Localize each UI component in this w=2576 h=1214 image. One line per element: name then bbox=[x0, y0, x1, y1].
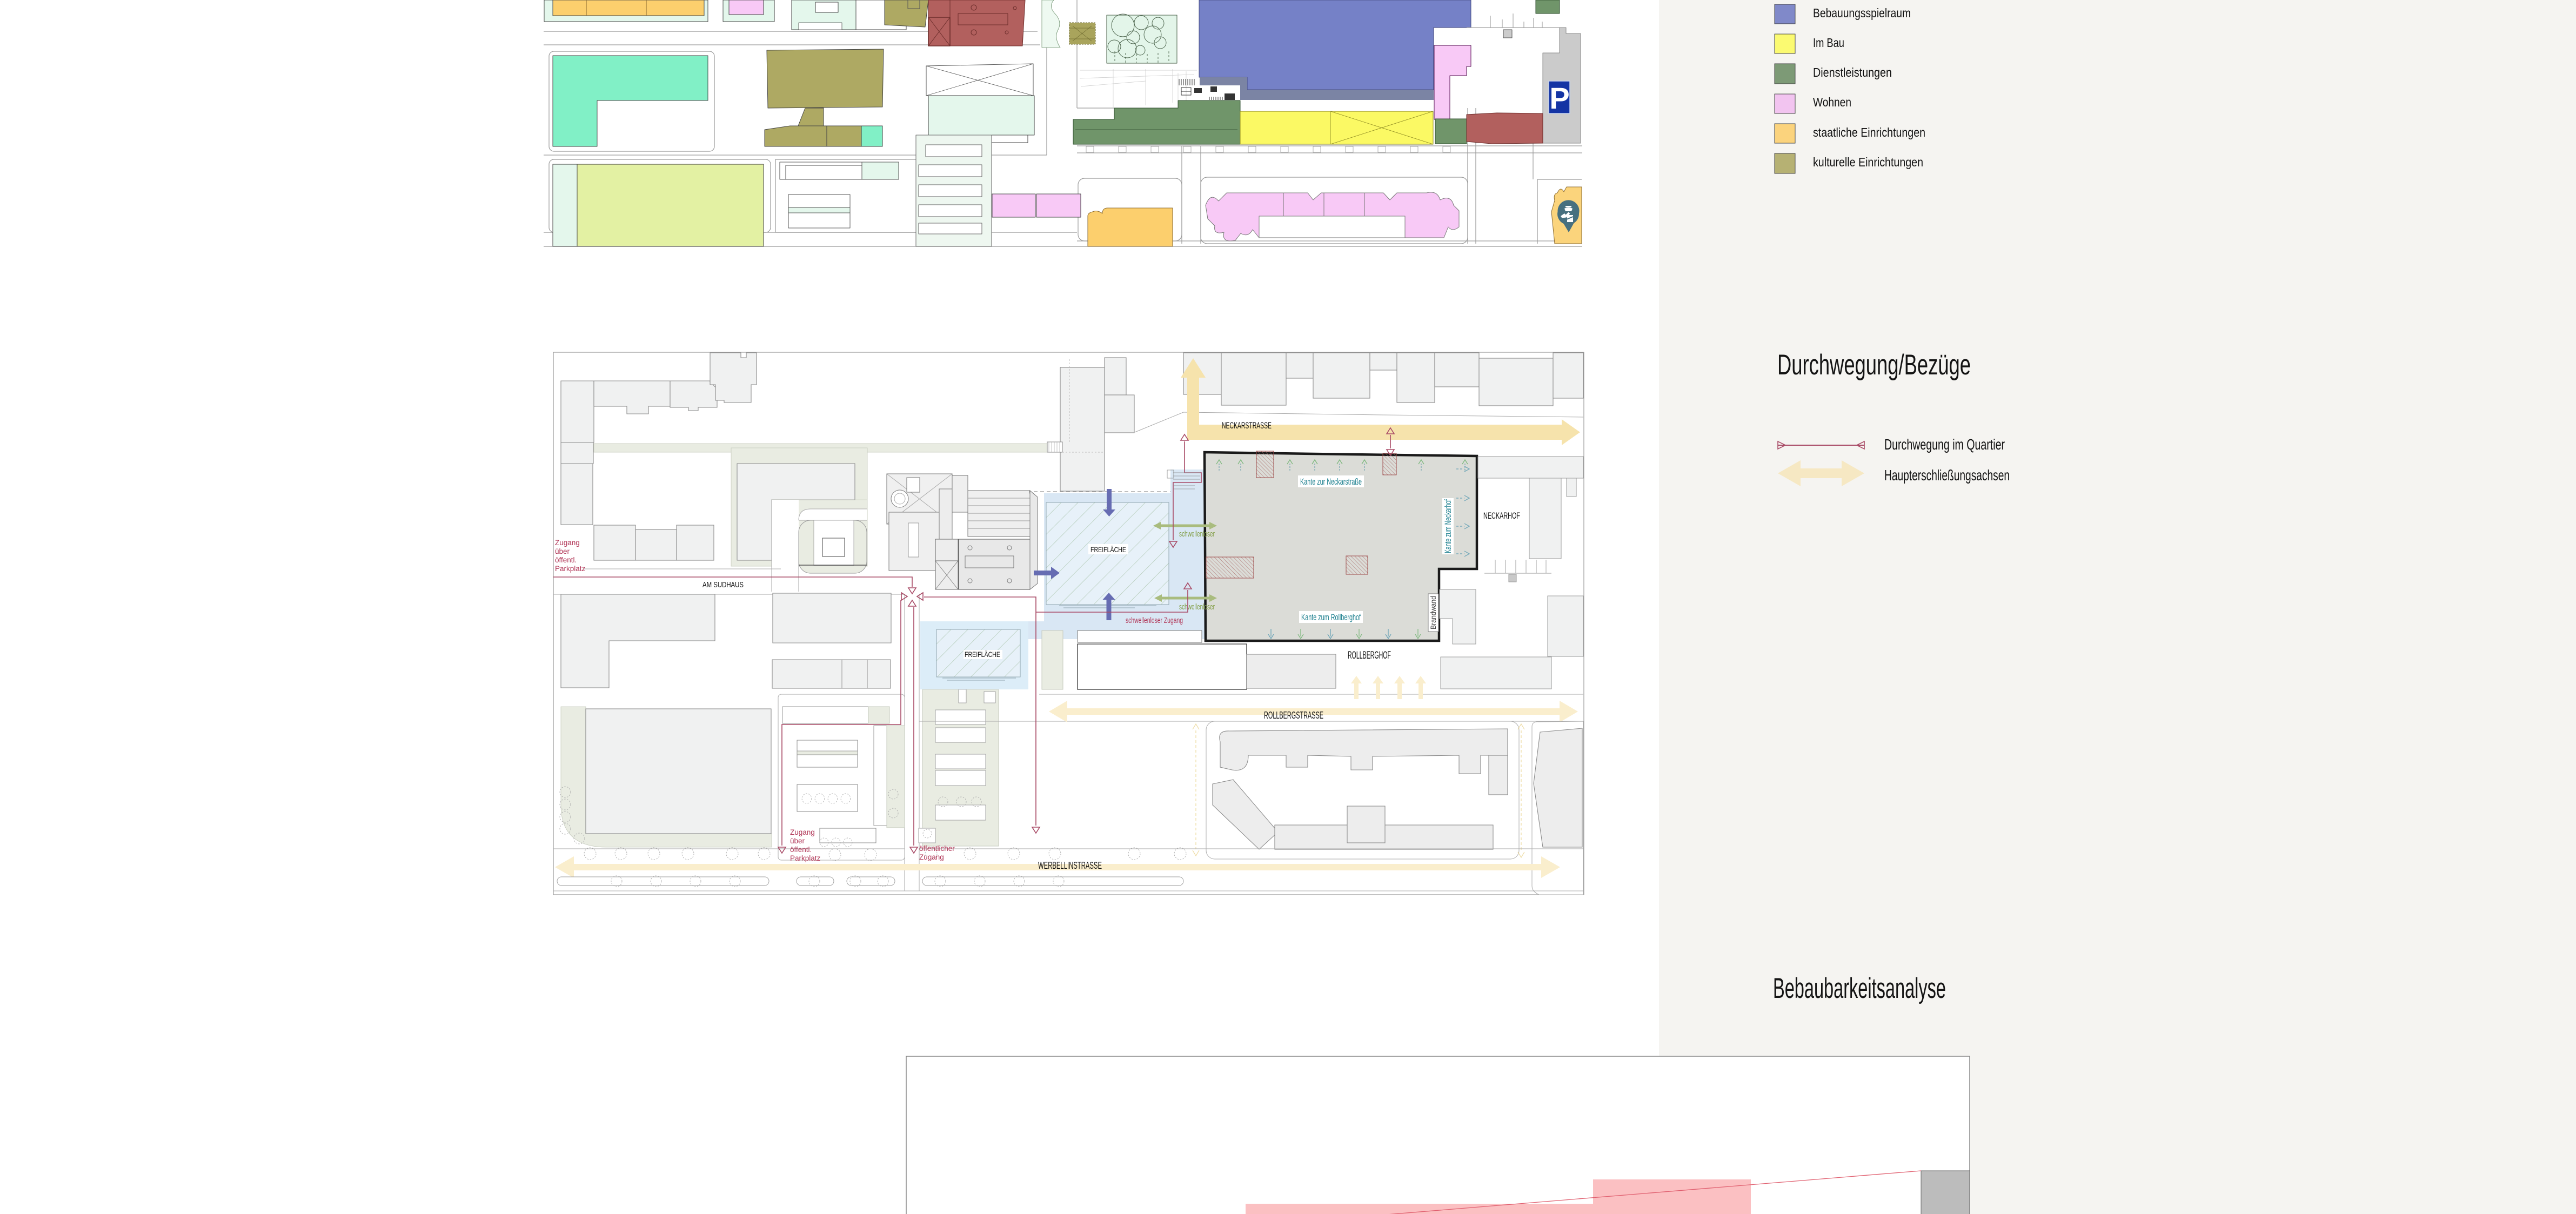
svg-text:Kante zum Neckarhof: Kante zum Neckarhof bbox=[1443, 499, 1453, 553]
svg-text:Dienstleistungen: Dienstleistungen bbox=[1813, 65, 1892, 79]
svg-text:öffentl.: öffentl. bbox=[790, 846, 812, 854]
svg-text:Zugang: Zugang bbox=[919, 853, 944, 861]
svg-text:Durchwegung/Bezüge: Durchwegung/Bezüge bbox=[1777, 349, 1971, 381]
svg-text:schwellenloser: schwellenloser bbox=[1179, 529, 1215, 539]
svg-text:Kante zur Neckarstraße: Kante zur Neckarstraße bbox=[1300, 477, 1362, 487]
svg-text:Wohnen: Wohnen bbox=[1813, 95, 1851, 109]
svg-text:P: P bbox=[1549, 81, 1569, 115]
svg-text:öffentlicher: öffentlicher bbox=[919, 844, 955, 853]
svg-text:FREIFLÄCHE: FREIFLÄCHE bbox=[965, 650, 1000, 659]
svg-text:Parkplatz: Parkplatz bbox=[790, 854, 821, 862]
svg-text:staatliche Einrichtungen: staatliche Einrichtungen bbox=[1813, 125, 1925, 139]
svg-text:FREIFLÄCHE: FREIFLÄCHE bbox=[1090, 545, 1126, 554]
svg-text:WERBELLINSTRASSE: WERBELLINSTRASSE bbox=[1038, 860, 1102, 871]
svg-text:Haupterschließungsachsen: Haupterschließungsachsen bbox=[1884, 467, 2010, 484]
svg-text:schwellenloser: schwellenloser bbox=[1179, 602, 1215, 612]
svg-text:Kante zum Rollberghof: Kante zum Rollberghof bbox=[1301, 612, 1361, 622]
svg-text:NECKARHOF: NECKARHOF bbox=[1483, 511, 1520, 521]
svg-text:öffentl.: öffentl. bbox=[555, 556, 577, 564]
svg-text:Zugang: Zugang bbox=[555, 539, 580, 547]
svg-text:NECKARSTRASSE: NECKARSTRASSE bbox=[1222, 420, 1272, 431]
svg-text:Zugang: Zugang bbox=[790, 828, 815, 836]
svg-text:ROLLBERGHOF: ROLLBERGHOF bbox=[1348, 650, 1391, 661]
svg-text:Bebauungsspielraum: Bebauungsspielraum bbox=[1813, 6, 1911, 20]
svg-text:AM SUDHAUS: AM SUDHAUS bbox=[702, 580, 744, 589]
svg-text:Brandwand: Brandwand bbox=[1429, 596, 1437, 629]
svg-text:ROLLBERGSTRASSE: ROLLBERGSTRASSE bbox=[1264, 710, 1323, 721]
svg-text:über: über bbox=[555, 547, 570, 555]
svg-text:Bebaubarkeitsanalyse: Bebaubarkeitsanalyse bbox=[1773, 972, 1946, 1004]
svg-text:über: über bbox=[790, 837, 805, 845]
svg-text:Parkplatz: Parkplatz bbox=[555, 565, 586, 573]
svg-text:kulturelle Einrichtungen: kulturelle Einrichtungen bbox=[1813, 155, 1923, 169]
svg-text:schwellenloser Zugang: schwellenloser Zugang bbox=[1126, 616, 1183, 625]
svg-text:Im Bau: Im Bau bbox=[1813, 36, 1844, 50]
svg-text:Durchwegung im Quartier: Durchwegung im Quartier bbox=[1884, 436, 2005, 453]
